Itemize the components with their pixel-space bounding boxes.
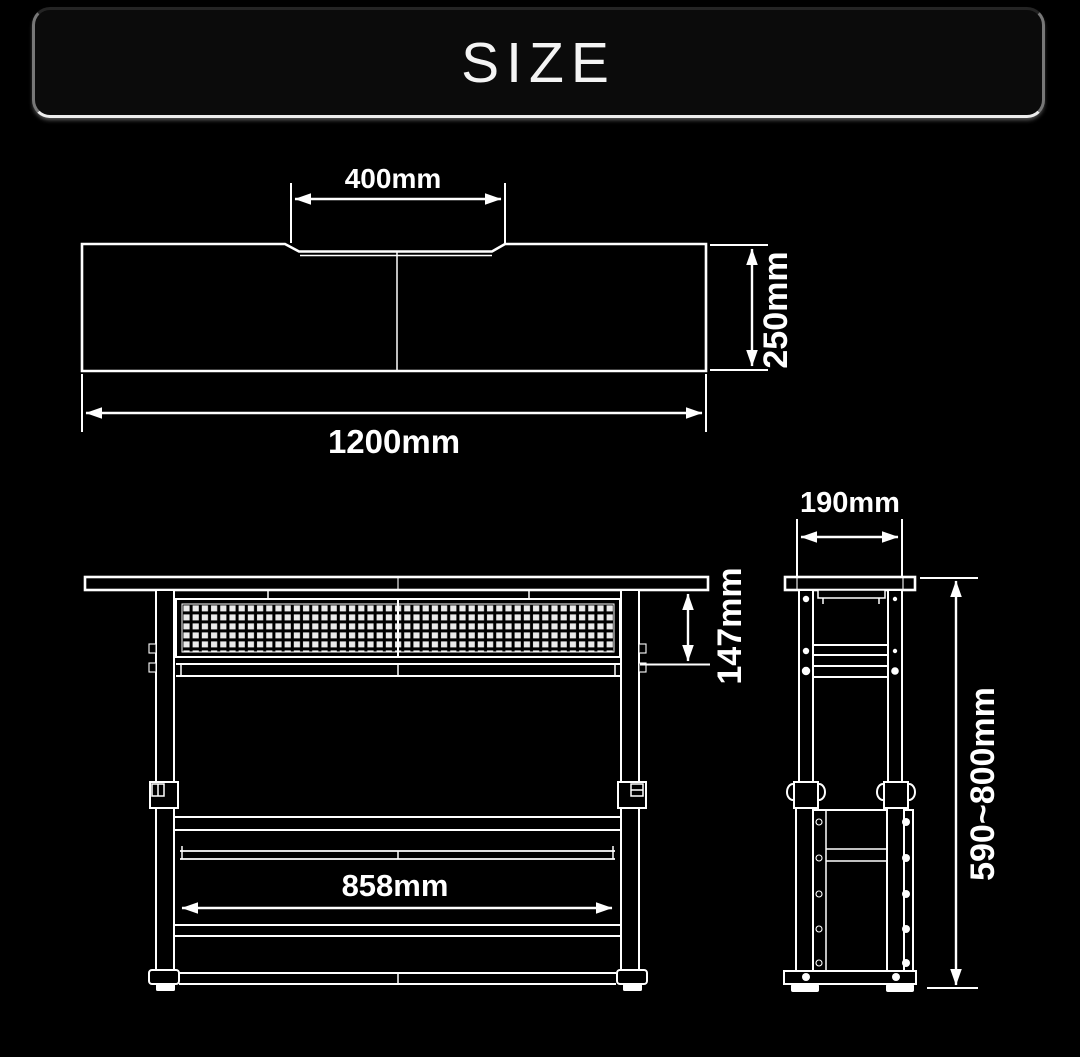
side-tabletop — [785, 577, 915, 590]
dim-label-inner-width: 858mm — [342, 868, 449, 903]
screw — [891, 667, 899, 675]
dim-label-panel-height: 147mm — [711, 567, 749, 684]
dim-label-height-range: 590~800mm — [964, 687, 1002, 881]
screw — [803, 648, 809, 654]
right-height-clamp — [618, 782, 646, 808]
screw — [902, 818, 910, 826]
side-lower-left-leg — [796, 808, 813, 973]
right-foot — [617, 970, 647, 984]
side-left-clamp — [787, 782, 825, 808]
side-foot-pad — [791, 984, 819, 992]
screw — [902, 854, 910, 862]
screw — [902, 890, 910, 898]
dim-label-depth: 250mm — [757, 251, 795, 368]
leg-bolt — [149, 644, 156, 653]
dim-label-side-depth: 190mm — [800, 487, 900, 519]
side-rear-leg — [888, 590, 902, 783]
dim-label-total-width: 1200mm — [328, 423, 460, 460]
desktop-outline — [82, 244, 706, 371]
left-foot — [149, 970, 179, 984]
screw — [816, 926, 822, 932]
side-foot-pad — [886, 984, 914, 992]
leg-bolt — [639, 644, 646, 653]
side-view: 190mm — [784, 487, 1002, 992]
side-lower-right-leg — [887, 808, 904, 973]
screw — [816, 819, 822, 825]
dim-label-tray-width: 400mm — [345, 163, 442, 194]
screw — [893, 649, 897, 653]
left-foot-pad — [156, 984, 175, 991]
mount-bracket — [818, 590, 885, 598]
front-view: 858mm 147mm — [85, 567, 749, 991]
foot-bolt — [892, 973, 900, 981]
screw — [902, 959, 910, 967]
left-height-clamp — [150, 782, 178, 808]
screw — [803, 596, 809, 602]
leg-bolt — [149, 663, 156, 672]
screw — [902, 925, 910, 933]
screw — [816, 855, 822, 861]
side-front-leg — [799, 590, 813, 783]
top-view: 400mm 250mm 1200mm — [82, 163, 795, 460]
foot-bolt — [802, 973, 810, 981]
front-tabletop — [85, 577, 708, 590]
right-foot-pad — [623, 984, 642, 991]
side-right-clamp — [877, 782, 915, 808]
screw — [816, 891, 822, 897]
screw — [816, 960, 822, 966]
screw — [802, 667, 810, 675]
screw — [893, 597, 897, 601]
desk-dimension-diagram: 400mm 250mm 1200mm — [0, 0, 1080, 1057]
